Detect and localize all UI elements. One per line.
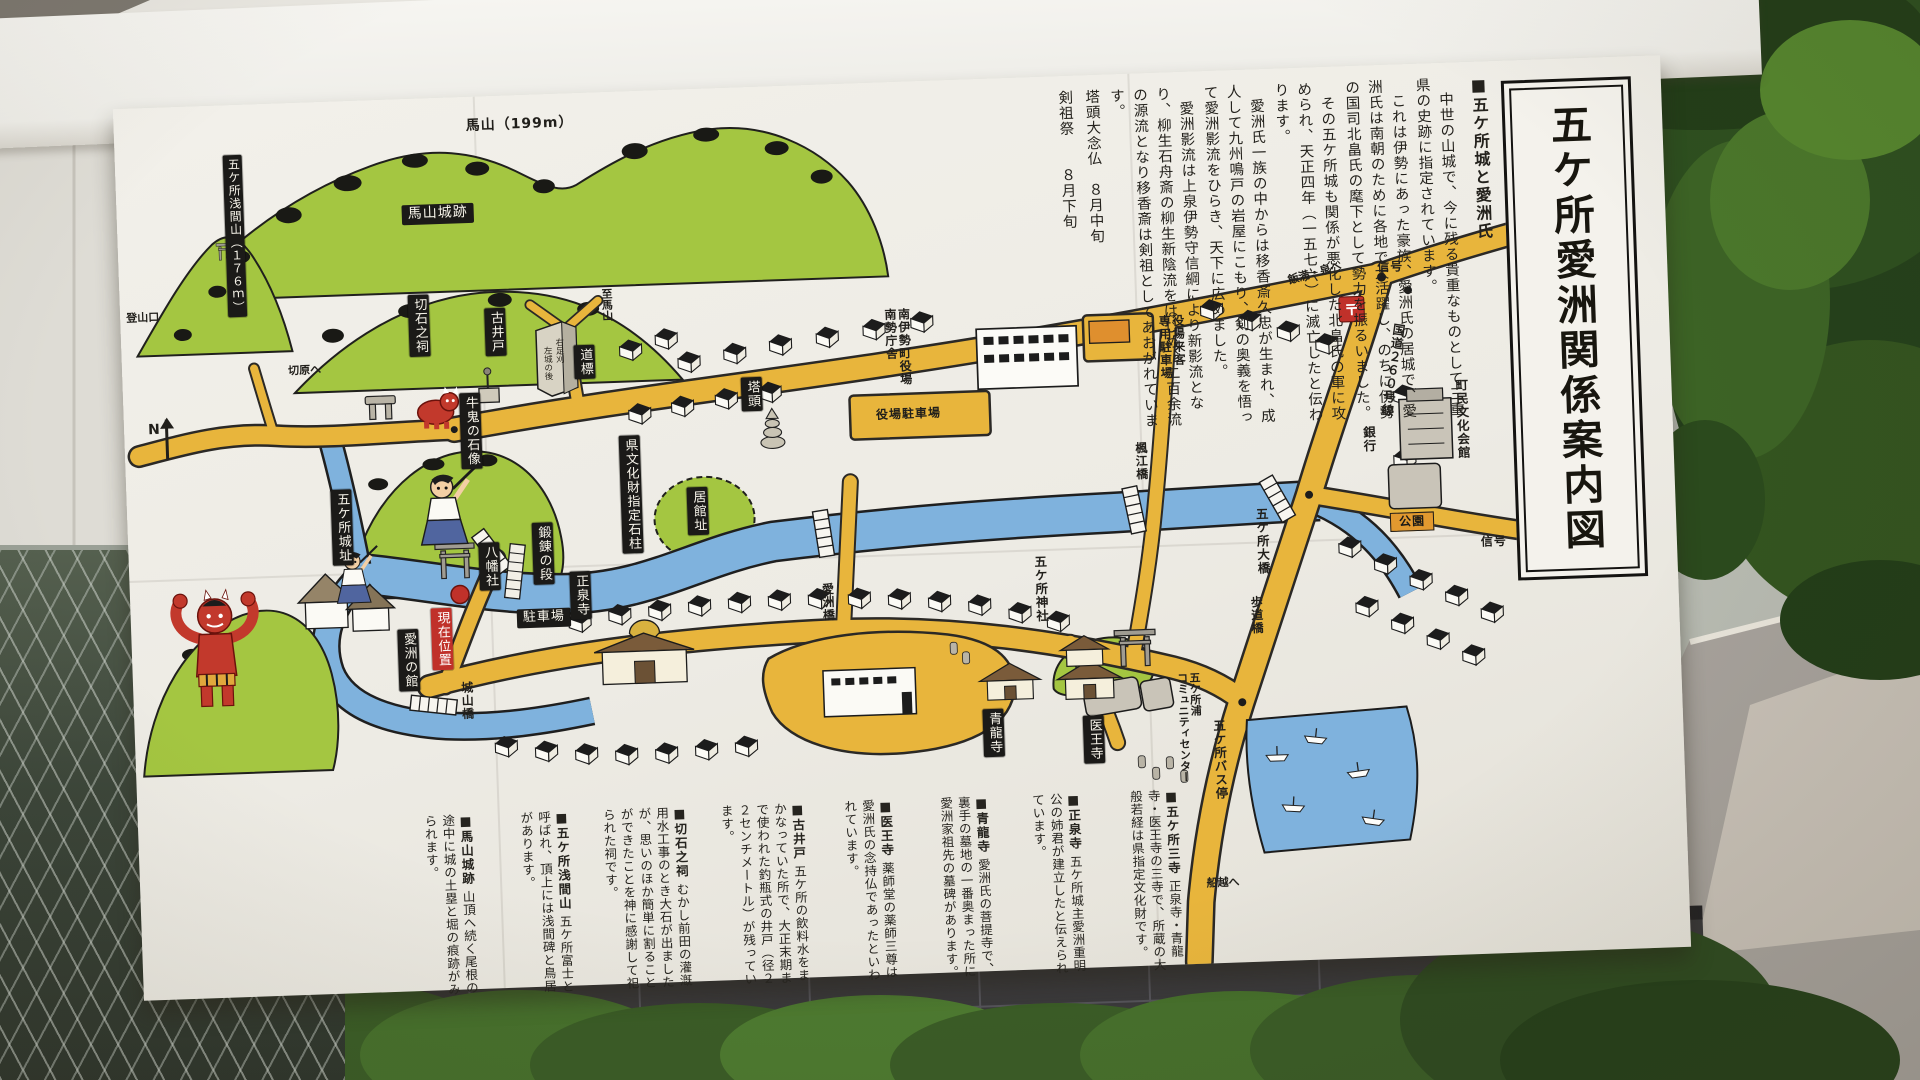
label-parking: 駐車場: [517, 608, 572, 628]
section-gokasho-sanji: ■五ケ所三寺 正泉寺・青龍寺・医王寺の三寺で、所蔵の大般若経は県指定文化財です。: [1087, 788, 1186, 981]
label-funakoshi: 船越へ: [1206, 876, 1239, 889]
sign-title: 五ケ所愛洲関係案内図: [1537, 103, 1613, 555]
label-tanren: 鍛錬の段: [532, 522, 555, 585]
label-park: 公園: [1390, 511, 1435, 532]
section-seiryuji: ■青龍寺 愛洲氏の菩提寺で、裏手の墓地の一番奥まった所に愛洲家祖先の墓碑がありま…: [899, 795, 996, 988]
label-yakuba: 南伊勢町役場 南勢庁舎: [882, 308, 912, 387]
compass-arrow-icon: [165, 420, 169, 460]
section-sengenyama: ■五ケ所浅間山 五ケ所富士と呼ばれ、頂上には浅間碑と鳥居があります。: [480, 810, 577, 1003]
label-iouji: 医王寺: [1083, 715, 1105, 764]
photo-of-guide-map-sign: 馬山（199m） 馬山城跡 五ケ所浅間山（１７６ｍ） 切石之祠 古井戸 道標 至…: [0, 0, 1920, 1080]
label-bus-stop: 五ケ所バス停: [1211, 719, 1228, 800]
compass-north: N: [147, 407, 189, 464]
section-furuido: ■古井戸 五ケ所の飲料水をまかなっていた所で、大正末期まで使われた釣瓶式の井戸（…: [694, 802, 813, 996]
label-jinja: 五ケ所神社: [1032, 555, 1048, 623]
section-shosenji: ■正泉寺 五ケ所城主愛洲重明公の姉君が建立したと伝えられています。: [995, 792, 1088, 985]
label-bank: 銀行: [1361, 425, 1376, 452]
label-stone-pillar: 県文化財指定石柱: [619, 435, 644, 554]
section-heading: ■正泉寺: [1065, 792, 1082, 851]
label-shiroyamabashi: 城山橋: [459, 681, 474, 720]
article-paragraph: 愛洲氏一族の中からは移香斎久忠が生まれ、成人して九州鳴戸の岩屋にこもり、剣の奥義…: [1197, 83, 1278, 430]
label-yakuba-parking: 役場駐車場: [876, 407, 941, 423]
label-tozanguchi: 登山口: [126, 312, 159, 325]
label-community-center: 五ケ所浦 コミュニティセンター: [1175, 672, 1203, 783]
section-heading: ■医王寺: [877, 798, 894, 857]
label-seiryuji: 青龍寺: [982, 709, 1004, 758]
article-paragraph: その五ケ所城も関係が悪化した北畠氏の軍に攻められ、天正四年（一五七六）に滅亡した…: [1268, 81, 1349, 428]
section-heading: ■切石之祠: [672, 806, 690, 879]
label-mayama-castle: 馬山城跡: [401, 203, 474, 225]
label-hodokyo: 歩道橋: [1249, 595, 1264, 634]
section-heading: ■五ケ所浅間山: [554, 810, 572, 911]
label-castle-site: 五ケ所城址: [330, 489, 353, 566]
section-heading: ■古井戸: [789, 802, 806, 861]
article-paragraph: 中世の山城で、今に残る貴重なものとして三重県の史跡に指定されています。: [1410, 76, 1468, 422]
label-furuido: 古井戸: [484, 308, 506, 357]
label-michishirube: 道標: [573, 345, 595, 380]
section-heading: ■馬山城跡: [458, 813, 476, 886]
section-iouji: ■医王寺 薬師堂の薬師三尊は愛洲氏の念持仏であったといわれています。: [811, 798, 900, 991]
label-kiriishi: 切石之祠: [408, 294, 431, 357]
label-fukoubashi: 楓江橋: [1133, 441, 1148, 480]
label-aisu-yakata: 愛洲の館: [397, 629, 420, 692]
stone-text-right: 右足刈: [554, 338, 563, 364]
label-ushioni: 牛鬼の石像: [459, 393, 482, 470]
sign-title-box: 五ケ所愛洲関係案内図: [1501, 76, 1648, 580]
section-heading: ■五ケ所三寺: [1163, 789, 1181, 876]
label-shosenji: 正泉寺: [569, 571, 591, 620]
section-mayama-castle: ■馬山城跡 山頂へ続く尾根の途中に城の土塁と堀の痕跡がみられます。: [382, 813, 481, 1006]
label-to-mayama: 至馬山: [599, 288, 612, 321]
article-paragraph: これは伊勢にあった豪族、愛洲氏の居城で、愛洲氏は南朝のために各地で大活躍し、のち…: [1339, 78, 1420, 425]
stone-text-left: 左城の後: [542, 346, 552, 380]
section-kiriishi: ■切石之祠 むかし前田の灌漑用水工事のとき大石が出ましたが、思いのほか簡単に割る…: [576, 806, 695, 1000]
guide-map-signboard: 馬山（199m） 馬山城跡 五ケ所浅間山（１７６ｍ） 切石之祠 古井戸 道標 至…: [113, 55, 1691, 1000]
label-aisubashi: 愛洲橋: [820, 582, 835, 621]
compass-n-label: N: [148, 422, 160, 438]
sign-title-inner-frame: 五ケ所愛洲関係案内図: [1509, 85, 1640, 573]
label-signal-east: 信号: [1481, 535, 1507, 549]
label-sengenyama: 五ケ所浅間山（１７６ｍ）: [223, 155, 248, 318]
label-mayama-peak: 馬山（199m）: [465, 115, 573, 134]
label-tatchu: 塔頭: [741, 377, 763, 412]
label-hachimansha: 八幡社: [478, 542, 500, 591]
article-paragraph: 愛洲影流は上泉伊勢守信綱により新影流となり、柳生石舟斎の柳生新陰流をはじめ、二百…: [1104, 85, 1208, 433]
label-to-kirihara: 切原へ: [288, 364, 321, 377]
history-article: ■五ケ所城と愛洲氏 中世の山城で、今に残る貴重なものとして三重県の史跡に指定され…: [991, 75, 1503, 437]
label-current-position: 現在位置: [431, 608, 454, 671]
section-heading: ■青龍寺: [973, 795, 990, 854]
label-ohashi: 五ケ所大橋: [1254, 507, 1270, 575]
label-kyokanshi: 居館址: [686, 487, 708, 536]
